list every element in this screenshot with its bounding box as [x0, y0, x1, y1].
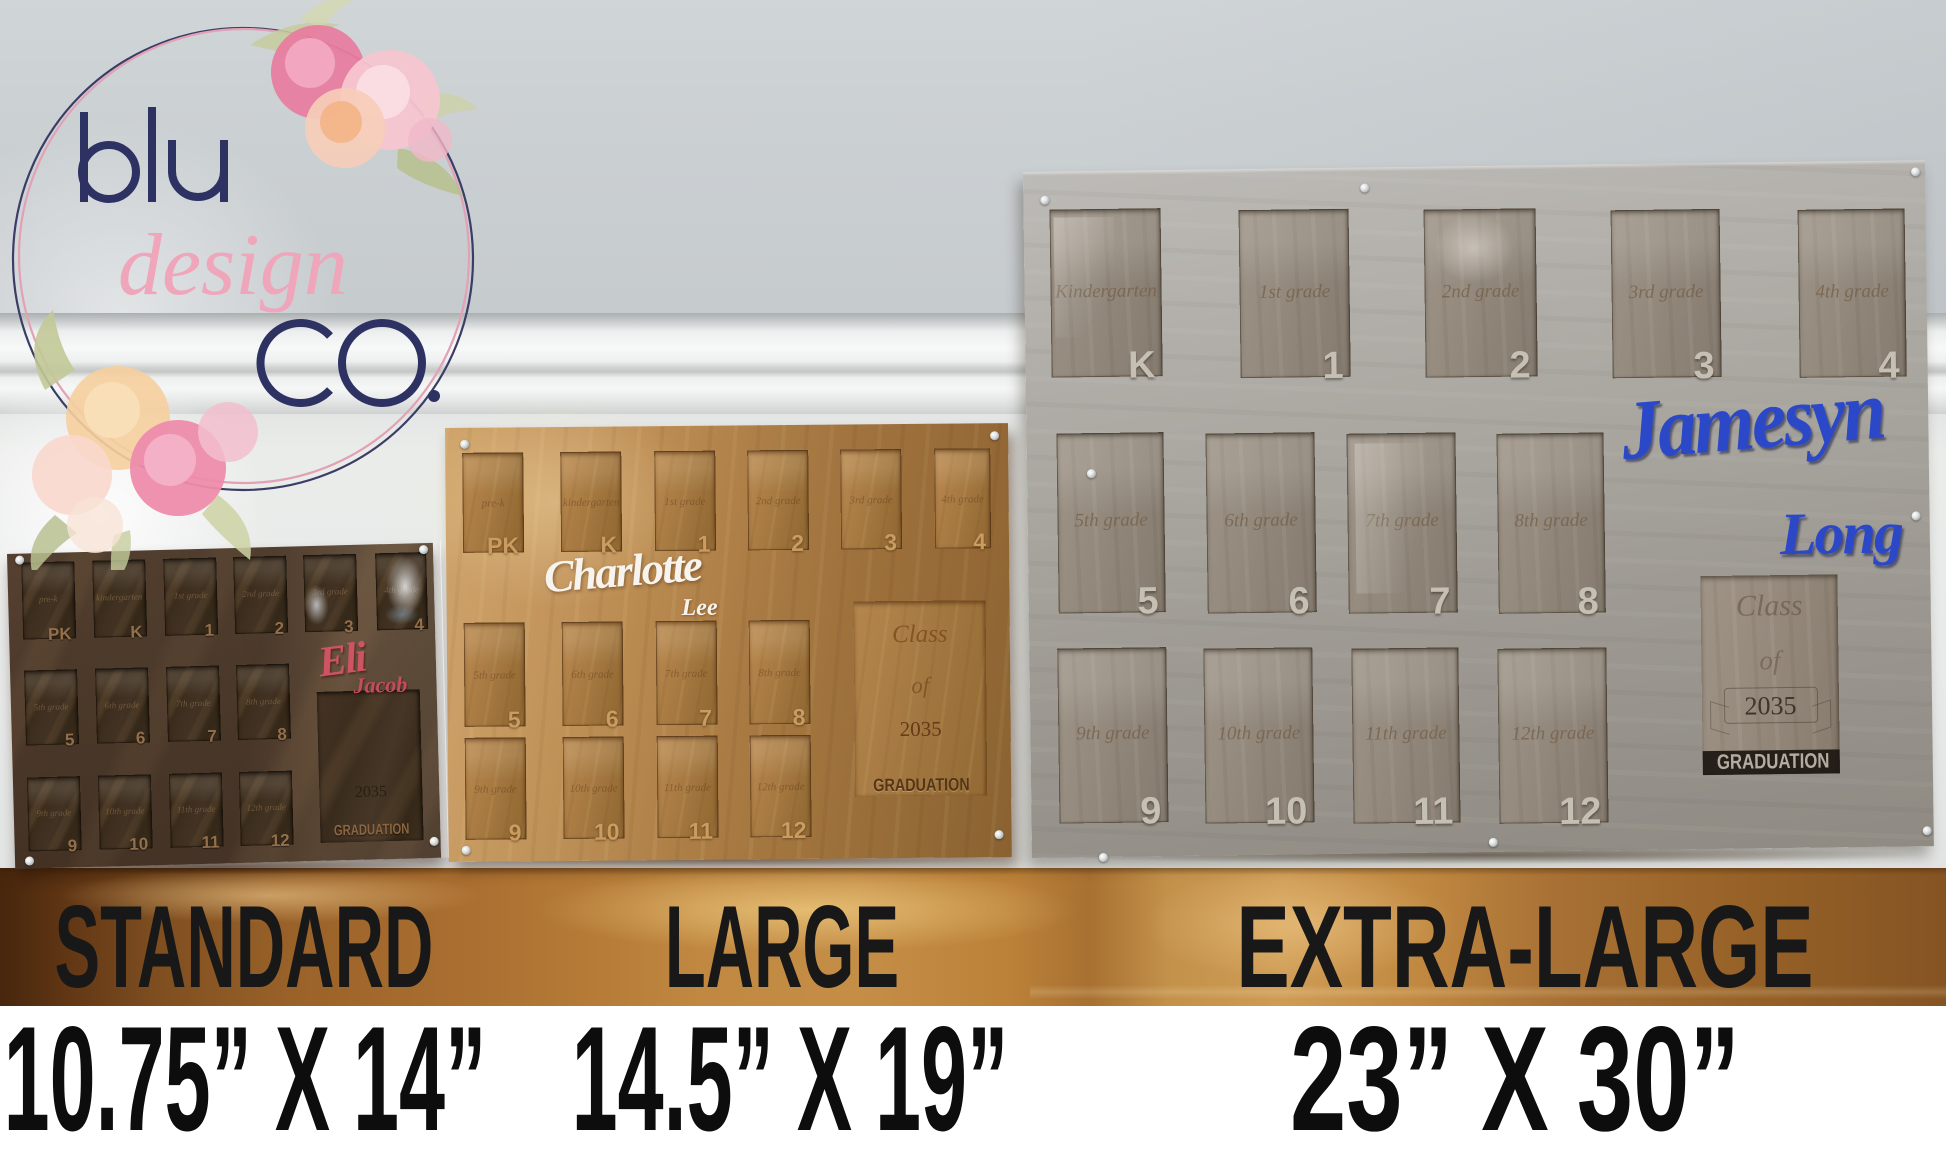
- svg-text:design: design: [118, 217, 348, 314]
